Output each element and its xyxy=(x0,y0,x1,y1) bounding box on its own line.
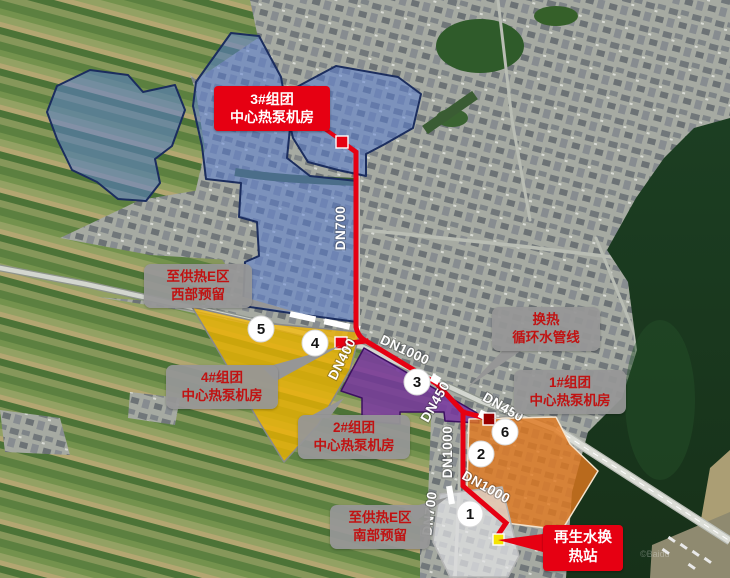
svg-text:6: 6 xyxy=(501,424,509,441)
heating-network-planning-map: 5 4 3 6 2 1 DN700 DN400 DN1000 DN450 DN4… xyxy=(0,0,730,578)
map-watermark: ©Baidu xyxy=(640,549,670,559)
callout-recycled-water: 再生水换 热站 xyxy=(543,525,623,571)
park-green xyxy=(436,19,524,73)
svg-text:2: 2 xyxy=(477,446,485,463)
svg-text:3: 3 xyxy=(413,374,421,391)
pipe-label-dn1000-vertical: DN1000 xyxy=(440,426,455,479)
node-badge-3: 3 xyxy=(404,369,430,395)
pipe-label-dn700-north: DN700 xyxy=(333,206,348,251)
callout-hub4: 4#组团 中心热泵机房 xyxy=(166,365,278,409)
satellite-map-canvas: 5 4 3 6 2 1 DN700 DN400 DN1000 DN450 DN4… xyxy=(0,0,730,578)
pump-station-marker-3 xyxy=(336,136,348,148)
node-badge-6: 6 xyxy=(492,419,518,445)
callout-hub2: 2#组团 中心热泵机房 xyxy=(298,415,410,459)
callout-hub1: 1#组团 中心热泵机房 xyxy=(514,370,626,414)
node-badge-5: 5 xyxy=(248,316,274,342)
node-badge-1: 1 xyxy=(457,501,483,527)
callout-exchange-loop: 换热 循环水管线 xyxy=(492,307,600,351)
callout-south-reserved: 至供热E区 南部预留 xyxy=(330,505,430,549)
svg-text:4: 4 xyxy=(311,335,320,352)
svg-text:1: 1 xyxy=(466,506,474,523)
svg-text:5: 5 xyxy=(257,321,265,338)
callout-hub3: 3#组团 中心热泵机房 xyxy=(214,86,330,131)
south-reserved-pipe xyxy=(449,486,452,504)
node-badge-2: 2 xyxy=(468,441,494,467)
callout-west-reserved: 至供热E区 西部预留 xyxy=(144,264,252,308)
pump-station-marker-6 xyxy=(483,413,495,425)
node-badge-4: 4 xyxy=(302,330,328,356)
